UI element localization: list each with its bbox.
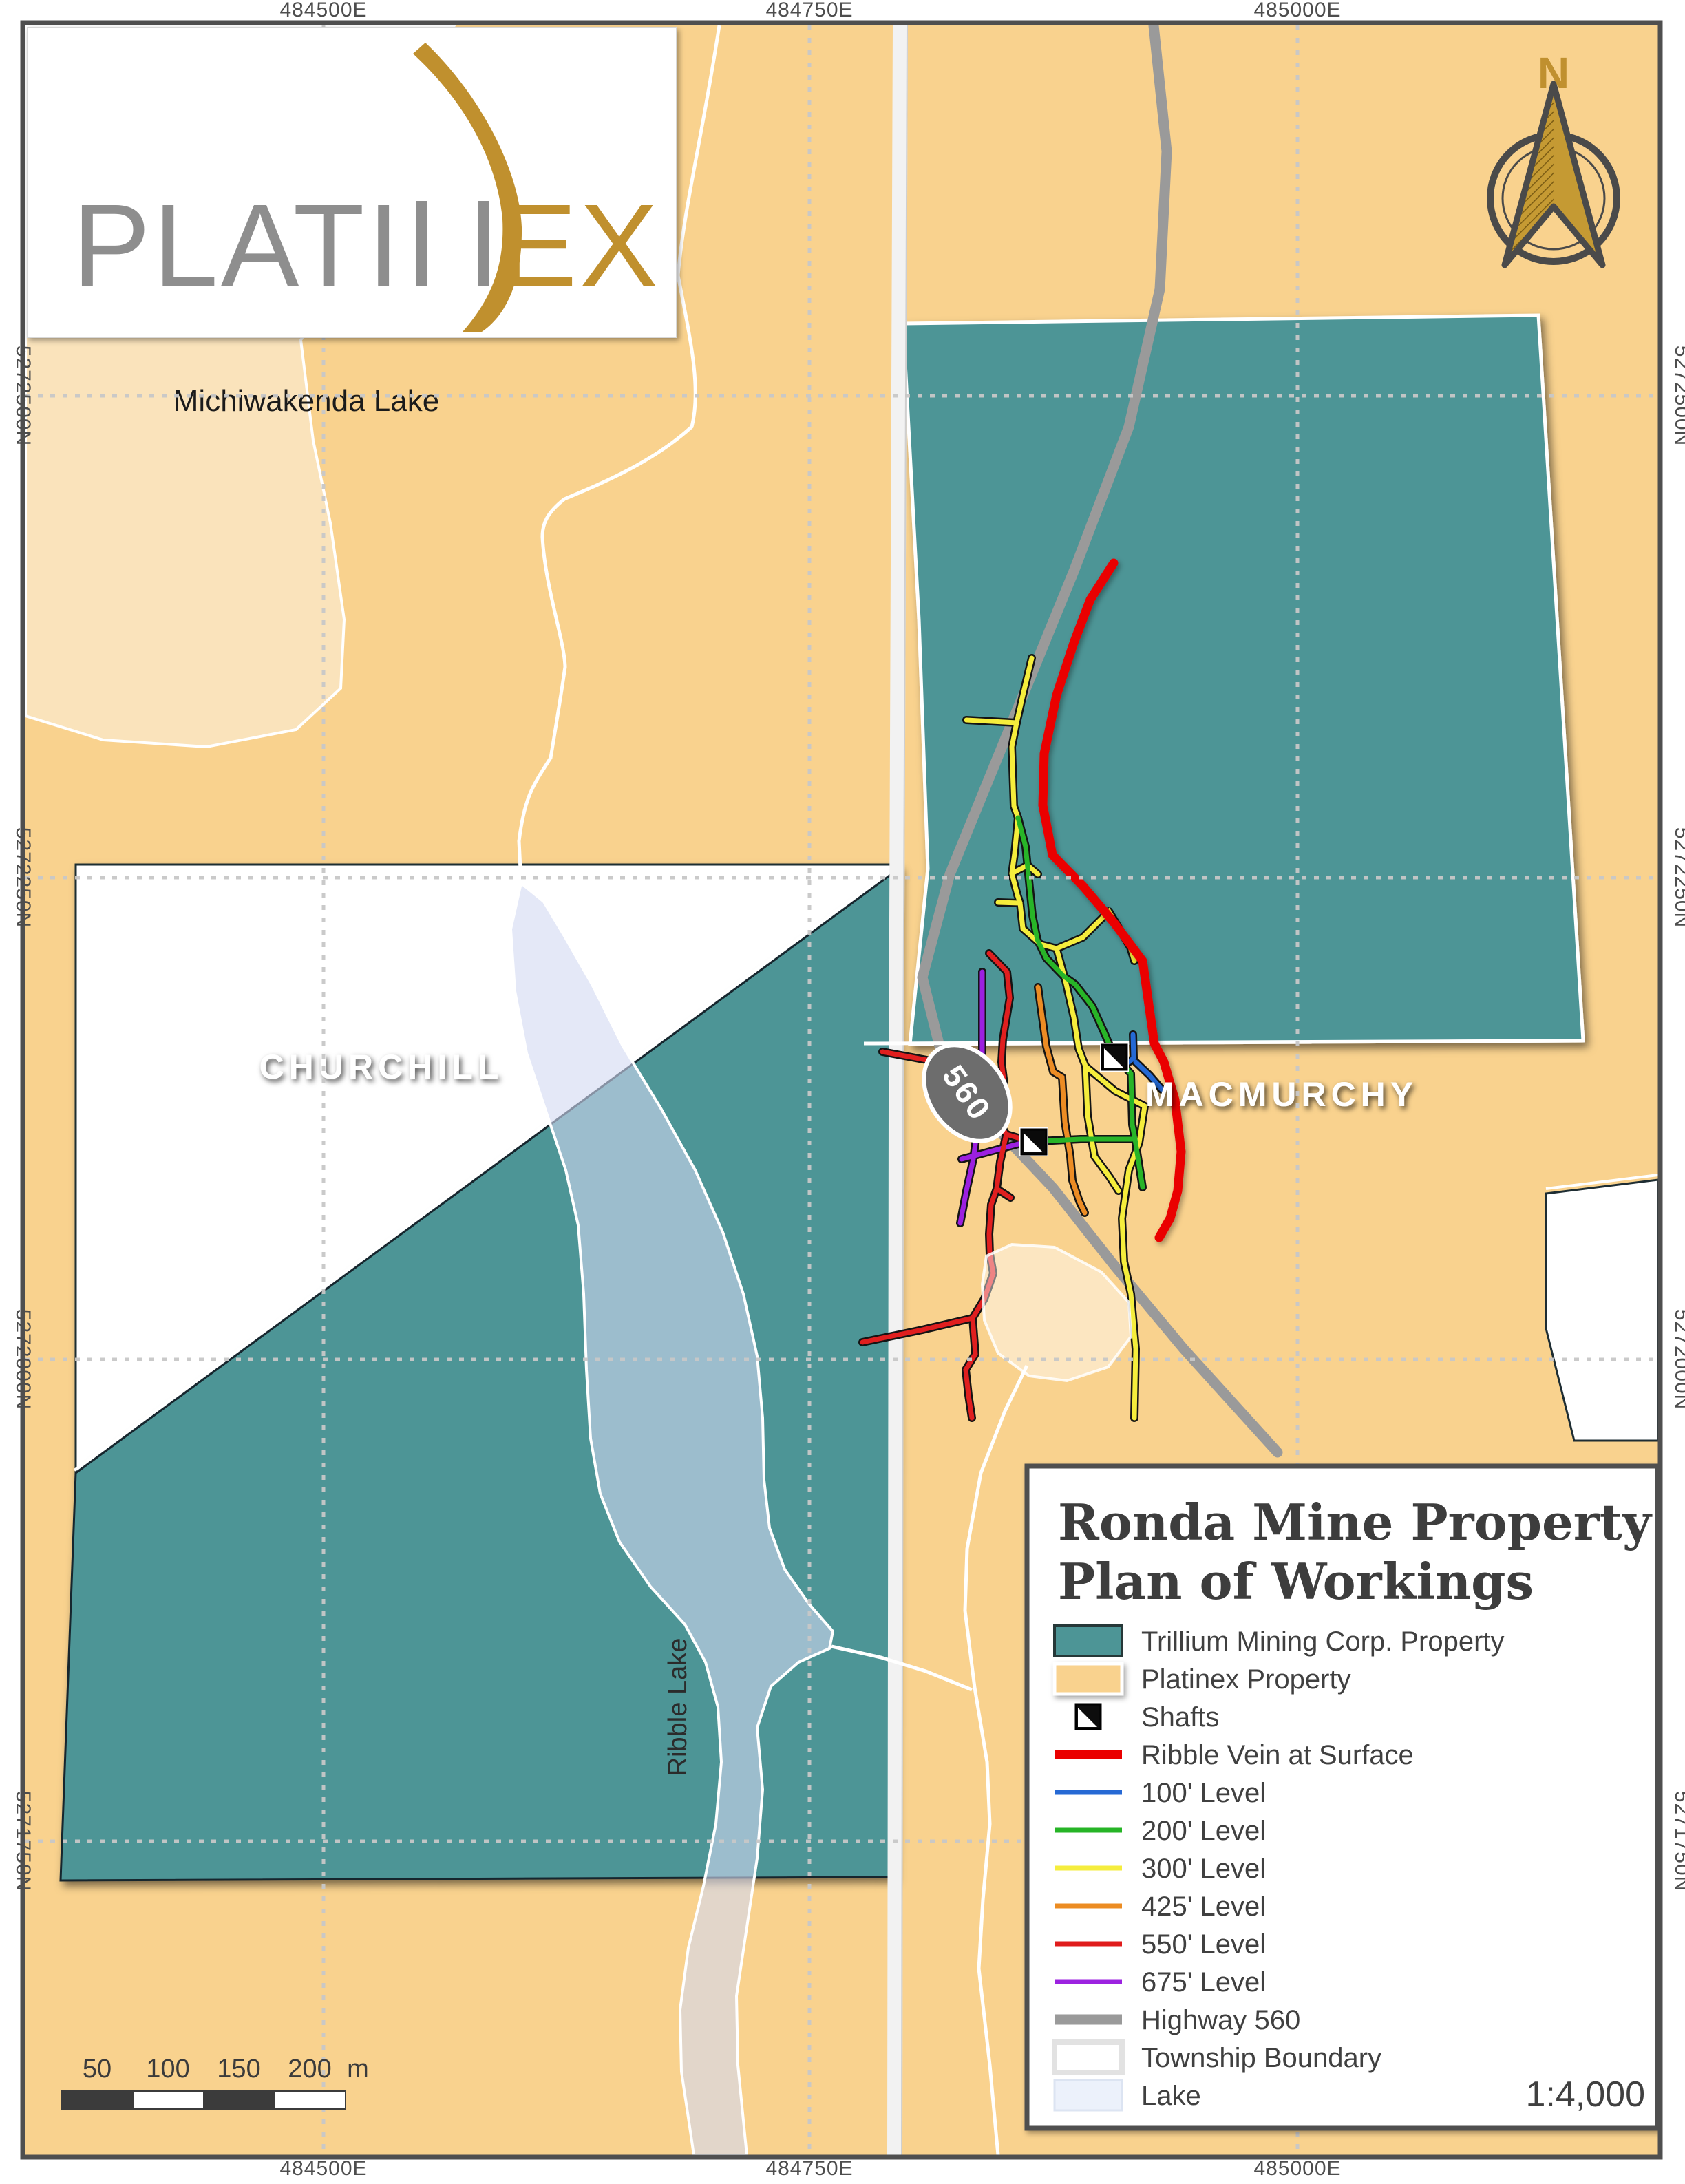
- legend-title-line1: Ronda Mine Property: [1058, 1493, 1653, 1551]
- northing-right-2: 5272250N: [1671, 827, 1685, 928]
- logo-n-stem-right: [478, 201, 489, 286]
- legend-swatch-shafts: [1074, 1702, 1103, 1731]
- legend-label-200: 200' Level: [1141, 1816, 1266, 1846]
- churchill-label: CHURCHILL: [259, 1048, 504, 1086]
- scalebar-tick-200: 200: [288, 2055, 331, 2084]
- shaft-marker-2: [1019, 1127, 1048, 1156]
- shaft-marker-1: [1100, 1043, 1129, 1072]
- logo-n-stem-left: [416, 201, 427, 286]
- legend-label-675: 675' Level: [1141, 1967, 1266, 1997]
- legend-label-shafts: Shafts: [1141, 1702, 1219, 1732]
- scalebar-tick-100: 100: [146, 2055, 189, 2084]
- easting-bottom-3: 485000E: [1253, 2157, 1341, 2180]
- michiwakenda-lake-label: Michiwakenda Lake: [173, 384, 439, 418]
- legend-label-township: Township Boundary: [1141, 2043, 1381, 2073]
- easting-bottom-2: 484750E: [765, 2157, 853, 2180]
- legend-swatch-lake: [1055, 2080, 1122, 2110]
- legend-label-vein: Ribble Vein at Surface: [1141, 1740, 1414, 1770]
- trillium-property-northeast: [903, 315, 1583, 1044]
- northing-right-3: 5272000N: [1671, 1309, 1685, 1410]
- legend-label-425: 425' Level: [1141, 1891, 1266, 1922]
- map-scale-ratio: 1:4,000: [1526, 2075, 1646, 2114]
- legend-swatch-trillium: [1055, 1626, 1122, 1656]
- easting-top-2: 484750E: [765, 0, 853, 21]
- logo-box: PLATI EX: [28, 28, 677, 337]
- legend-label-lake: Lake: [1141, 2081, 1201, 2111]
- scalebar-tick-150: 150: [217, 2055, 260, 2084]
- easting-bottom-1: 484500E: [279, 2157, 367, 2180]
- legend-label-300: 300' Level: [1141, 1854, 1266, 1884]
- scalebar-tick-50: 50: [83, 2055, 112, 2084]
- legend-label-highway: Highway 560: [1141, 2005, 1300, 2035]
- easting-top-1: 484500E: [279, 0, 367, 21]
- northing-left-3: 5272000N: [12, 1309, 34, 1410]
- northing-right-1: 5272500N: [1671, 346, 1685, 446]
- logo-text-plati: PLATI: [72, 180, 403, 311]
- legend-label-platinex: Platinex Property: [1141, 1664, 1351, 1695]
- macmurchy-label: MACMURCHY: [1145, 1075, 1418, 1114]
- north-letter: N: [1538, 48, 1569, 98]
- northing-left-4: 5271750N: [12, 1791, 34, 1891]
- legend-swatch-township: [1055, 2042, 1122, 2072]
- logo-text-ex: EX: [499, 180, 661, 311]
- map-canvas: 560 Michiwakenda Lake CHURCHILL MACMURCH…: [0, 0, 1685, 2181]
- legend-swatch-platinex: [1055, 1664, 1122, 1694]
- scalebar-unit: m: [347, 2055, 369, 2084]
- legend-label-550: 550' Level: [1141, 1929, 1266, 1960]
- easting-top-3: 485000E: [1253, 0, 1341, 21]
- northing-left-2: 5272250N: [12, 827, 34, 928]
- northing-left-1: 5272500N: [12, 346, 34, 446]
- northing-right-4: 5271750N: [1671, 1791, 1685, 1891]
- legend-title-line2: Plan of Workings: [1058, 1552, 1534, 1611]
- legend: Ronda Mine Property Plan of Workings Tri…: [1027, 1466, 1657, 2128]
- legend-label-trillium: Trillium Mining Corp. Property: [1141, 1626, 1505, 1657]
- map-sheet: 560 Michiwakenda Lake CHURCHILL MACMURCH…: [0, 0, 1685, 2181]
- legend-label-100: 100' Level: [1141, 1778, 1266, 1808]
- gravel-road: [895, 25, 900, 2155]
- ribble-lake-label: Ribble Lake: [664, 1638, 692, 1777]
